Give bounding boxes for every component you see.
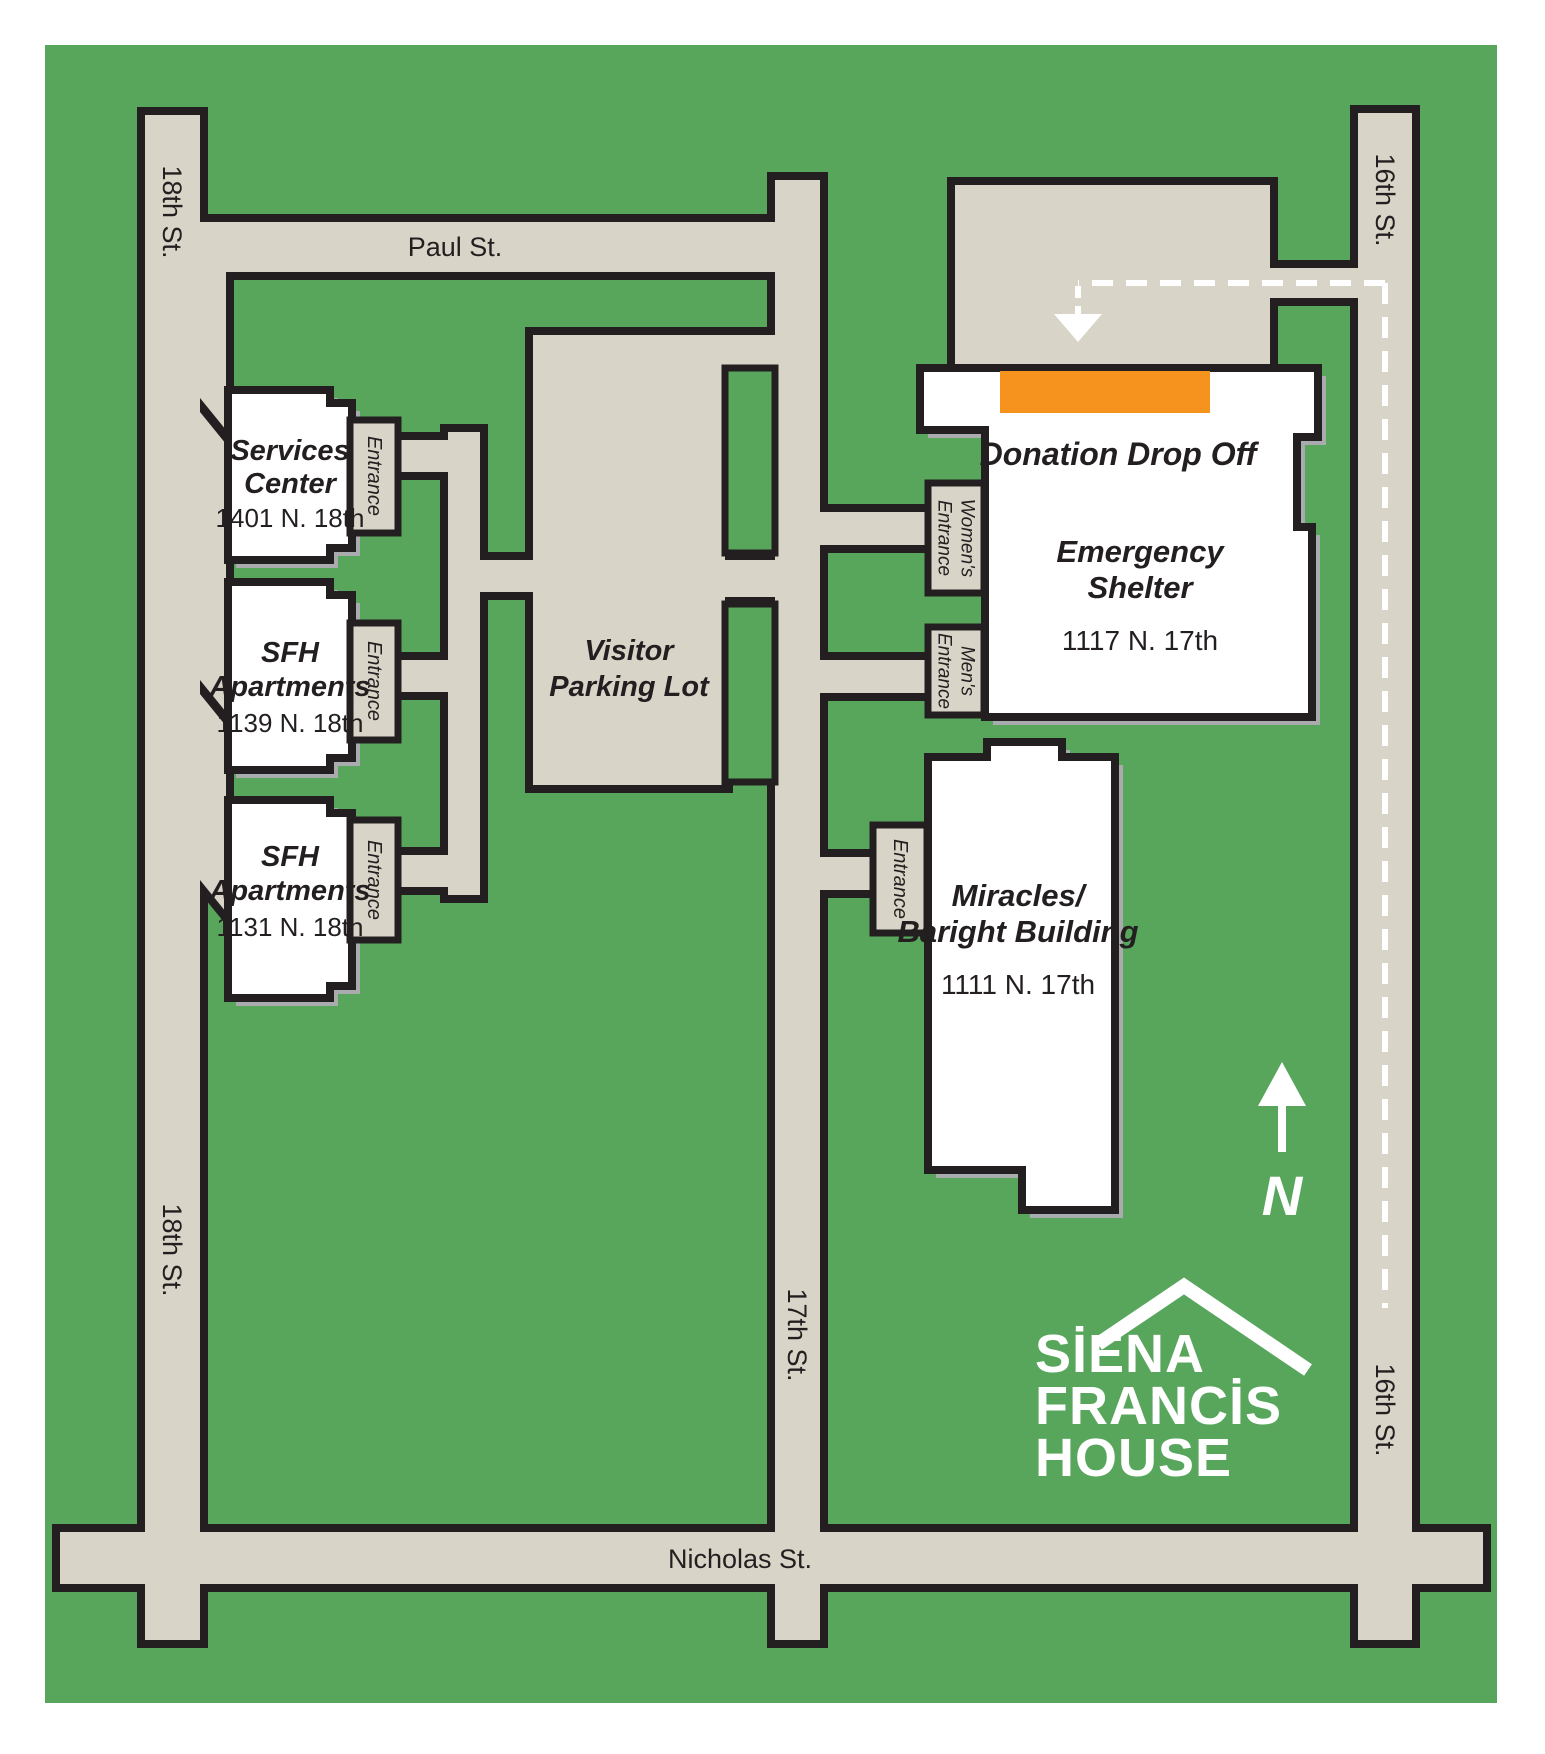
visitor-parking-lot — [533, 335, 725, 785]
16th-st-label-bottom: 16th St. — [1370, 1363, 1400, 1456]
campus-map: Paul St. Nicholas St. 18th St. 18th St. … — [0, 0, 1545, 1754]
services-entrance-label: Entrance — [363, 436, 385, 516]
sfh1139-entrance-label: Entrance — [363, 641, 385, 721]
womens-entrance-drive — [812, 512, 940, 545]
north-label: N — [1262, 1164, 1304, 1227]
mens-entrance-drive — [812, 660, 940, 693]
emergency-shelter-title-1: Emergency — [1056, 534, 1225, 569]
miracles-title-1: Miracles/ — [952, 878, 1088, 913]
sfh1139-address: 1139 N. 18th — [217, 708, 364, 738]
18th-st-shoulder-2 — [200, 412, 226, 712]
donation-drop-off-label: Donation Drop Off — [980, 436, 1260, 472]
services-center-title-2: Center — [244, 468, 338, 500]
womens-entrance-label-1: Women's — [957, 499, 978, 578]
nicholas-st-label: Nicholas St. — [668, 1544, 812, 1574]
sfh1139-title-1: SFH — [261, 637, 320, 669]
paul-st-label: Paul St. — [408, 232, 503, 262]
services-center-address: 1401 N. 18th — [216, 503, 365, 533]
sfh1131-address: 1131 N. 18th — [217, 912, 364, 942]
visitor-parking-title-1: Visitor — [584, 635, 675, 667]
sfh1131-title-2: Apartments — [208, 875, 370, 907]
median-island-lower — [725, 604, 775, 782]
mens-entrance-label-1: Men's — [957, 646, 978, 697]
miracles-address: 1111 N. 17th — [941, 969, 1095, 1000]
womens-entrance-label-2: Entrance — [934, 500, 955, 576]
emergency-shelter-address: 1117 N. 17th — [1062, 625, 1218, 656]
campus-map-page: Paul St. Nicholas St. 18th St. 18th St. … — [0, 0, 1545, 1754]
emergency-shelter-title-2: Shelter — [1087, 570, 1194, 605]
median-island-upper — [725, 368, 775, 553]
lot-connector-mid — [715, 560, 785, 597]
west-collector-drive — [448, 432, 480, 895]
road-17th-st — [775, 180, 820, 1640]
17th-st-label: 17th St. — [782, 1288, 812, 1381]
north-lot — [955, 185, 1270, 365]
18th-st-label-top: 18th St. — [157, 165, 187, 258]
logo-line-2: FRANCİS — [1035, 1376, 1282, 1436]
donation-drop-off-strip — [1000, 371, 1210, 413]
lot-connector-upper — [718, 335, 782, 368]
lot-west-link — [472, 560, 545, 592]
16th-st-label-top: 16th St. — [1370, 153, 1400, 246]
logo-line-3: HOUSE — [1035, 1428, 1232, 1488]
miracles-entrance-label: Entrance — [889, 839, 911, 919]
services-center-title-1: Services — [230, 435, 349, 467]
18th-st-label-bottom: 18th St. — [157, 1203, 187, 1296]
visitor-parking-title-2: Parking Lot — [549, 671, 710, 703]
miracles-title-2: Baright Building — [897, 914, 1138, 949]
mens-entrance-label-2: Entrance — [934, 633, 955, 709]
logo-line-1: SİENA — [1035, 1324, 1205, 1384]
sfh1139-title-2: Apartments — [208, 671, 370, 703]
sfh1131-title-1: SFH — [261, 841, 320, 873]
sfh1131-entrance-label: Entrance — [363, 840, 385, 920]
road-18th-st — [145, 115, 200, 1640]
